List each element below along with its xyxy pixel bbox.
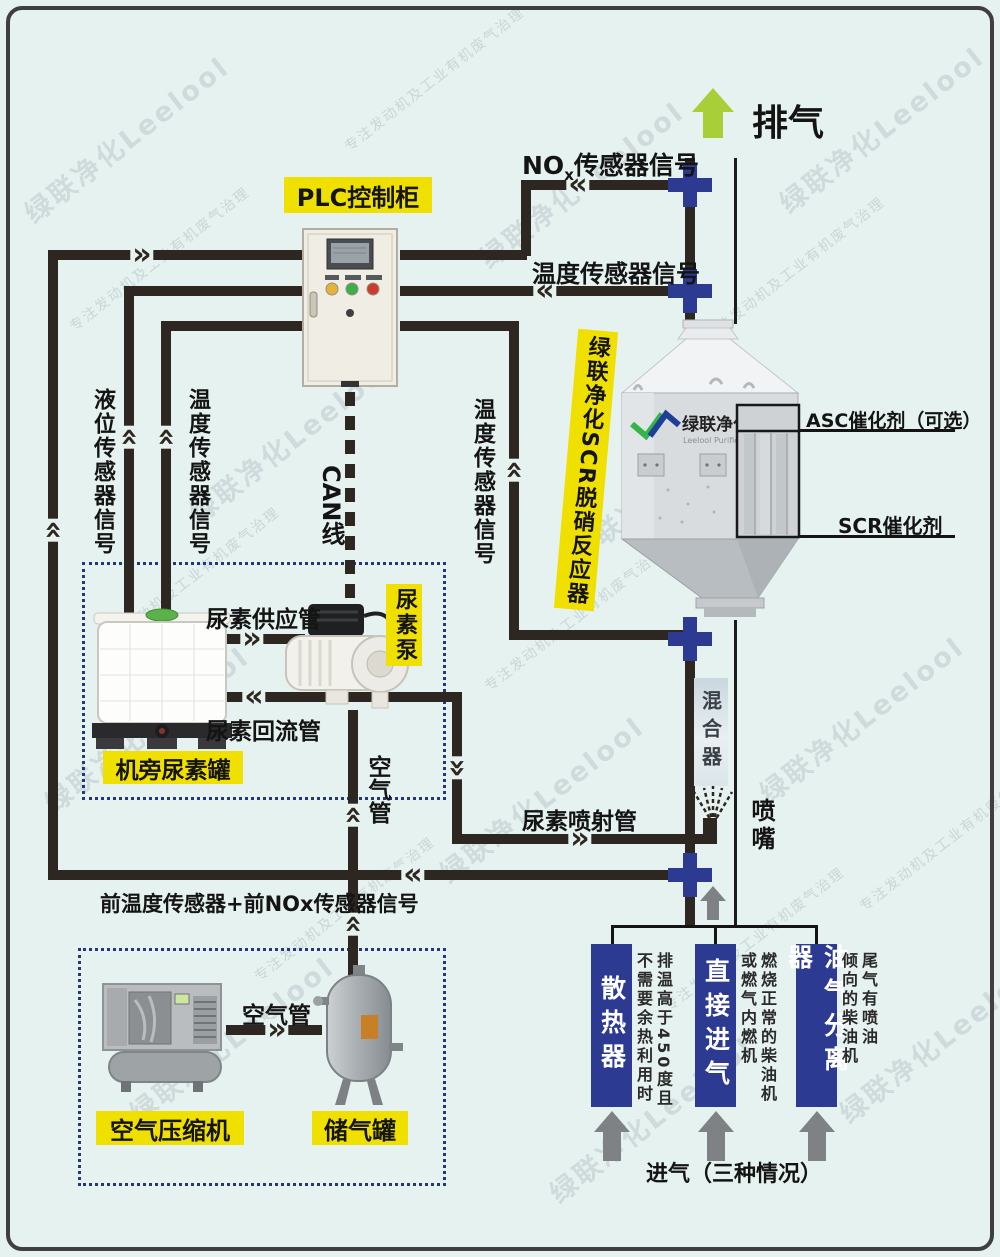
intake-branch-stub xyxy=(611,925,614,945)
nozzle-label: 喷嘴 xyxy=(744,798,779,854)
pipe-front-signal xyxy=(48,250,305,260)
temp-signal-mid-label: 温度传感器信号 xyxy=(466,398,498,566)
flow-arrow-up: » xyxy=(118,425,140,448)
plc-label: PLC控制柜 xyxy=(284,177,432,213)
watermark-slogan: 专注发动机及工业有机废气治理 xyxy=(855,762,1000,916)
exhaust-duct-bottom-wall xyxy=(734,620,737,926)
scr-catalyst-label: SCR催化剂 xyxy=(838,510,942,539)
can-line-label: CAN线 xyxy=(314,465,349,545)
urea-supply-label: 尿素供应管 xyxy=(206,600,321,634)
asc-catalyst-label: ASC催化剂（可选） xyxy=(806,406,981,433)
flow-arrow-right: » xyxy=(130,244,153,266)
source-direct-intake: 直接进气 xyxy=(695,944,736,1107)
source-oil-gas-separator: 油气分离器 xyxy=(796,944,837,1107)
intake-up-arrow xyxy=(700,886,726,920)
watermark-brand: 绿联净化Leelool xyxy=(430,706,651,891)
pipe-level-signal xyxy=(124,286,134,620)
air-pipe-label-bottom: 空气管 xyxy=(242,996,311,1030)
temp-signal-right-label: 温度传感器信号 xyxy=(532,254,700,289)
scr-reactor: 绿联净化 Leelool Purifier xyxy=(598,312,812,628)
nox-signal-label: NOx传感器信号 xyxy=(522,146,699,184)
watermark-brand: 绿联净化Leelool xyxy=(15,46,236,231)
flow-arrow-up: » xyxy=(155,425,177,448)
source-radiator-note: 排温高于450度且不需要余热利用时 xyxy=(633,952,673,1108)
pipe-tank-temp-signal xyxy=(161,321,171,622)
flow-arrow-left: « xyxy=(242,686,265,708)
pipe-nox-signal xyxy=(400,250,527,260)
flow-arrow-up: » xyxy=(503,458,525,481)
air-tank-label: 储气罐 xyxy=(312,1111,408,1145)
urea-return-label: 尿素回流管 xyxy=(206,712,321,746)
pipe-temp-signal-mid xyxy=(509,630,691,640)
watermark-brand: 绿联净化Leelool xyxy=(750,626,971,811)
intake-branch-stub xyxy=(815,925,818,945)
urea-injection-label: 尿素喷射管 xyxy=(522,802,637,836)
intake-caption: 进气（三种情况） xyxy=(646,1156,822,1188)
urea-tank-label: 机旁尿素罐 xyxy=(103,751,243,784)
level-signal-label: 液位传感器信号 xyxy=(86,388,118,556)
pipe-air xyxy=(348,710,358,978)
air-storage-tank xyxy=(313,963,405,1108)
pipe-level-signal xyxy=(124,286,305,296)
air-compressor xyxy=(95,980,240,1095)
air-compressor-label: 空气压缩机 xyxy=(96,1111,244,1145)
exhaust-up-arrow xyxy=(692,88,734,138)
source-oil-gas-separator-note: 尾气有喷油倾向的柴油机 xyxy=(838,952,878,1066)
intake-source-arrow xyxy=(698,1111,734,1161)
pipe-front-signal xyxy=(48,250,58,880)
pipe-tank-temp-signal xyxy=(161,321,305,331)
tank-temp-signal-label: 温度传感器信号 xyxy=(181,388,213,556)
intake-source-arrow xyxy=(799,1111,835,1161)
front-signal-label: 前温度传感器+前NOx传感器信号 xyxy=(100,888,419,918)
svg-text:Leelool Purifier: Leelool Purifier xyxy=(683,436,743,445)
watermark-slogan: 专注发动机及工业有机废气治理 xyxy=(340,2,529,156)
flow-arrow-left: « xyxy=(401,864,424,886)
intake-branch-stub xyxy=(714,925,717,945)
pipe-nox-signal xyxy=(521,180,531,256)
source-direct-intake-note: 燃烧正常的柴油机或燃气内燃机 xyxy=(737,952,777,1104)
scr-system-diagram: 绿联净化Leelool 绿联净化Leelool 绿联净化Leelool 绿联净化… xyxy=(0,0,1000,1257)
urea-pump-label: 尿素泵 xyxy=(386,584,422,666)
air-pipe-label-vertical: 空气管 xyxy=(360,755,394,824)
mixer-section: 混合器 xyxy=(694,678,728,786)
plc-cabinet xyxy=(300,226,400,391)
source-radiator: 散热器 xyxy=(591,944,632,1107)
flow-arrow-down: » xyxy=(446,756,468,779)
exhaust-label: 排气 xyxy=(752,94,824,146)
flow-arrow-up: » xyxy=(42,518,64,541)
exhaust-duct-top-wall xyxy=(734,158,737,324)
pipe-temp-signal-mid xyxy=(400,321,519,331)
nozzle-spray xyxy=(690,786,736,826)
pipe-front-signal xyxy=(48,870,691,880)
intake-source-arrow xyxy=(594,1111,630,1161)
